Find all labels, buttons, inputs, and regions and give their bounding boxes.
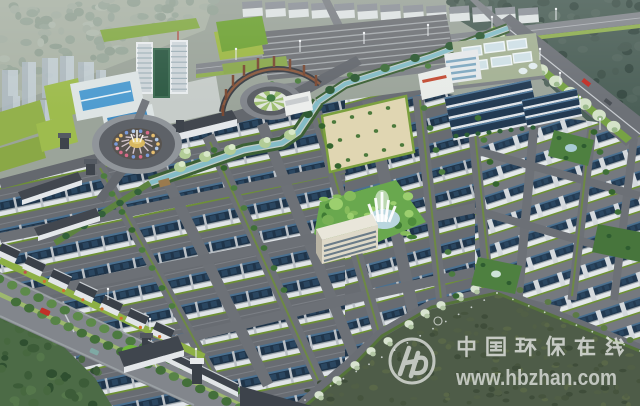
svg-text:www.hbzhan.com: www.hbzhan.com [455, 365, 617, 390]
